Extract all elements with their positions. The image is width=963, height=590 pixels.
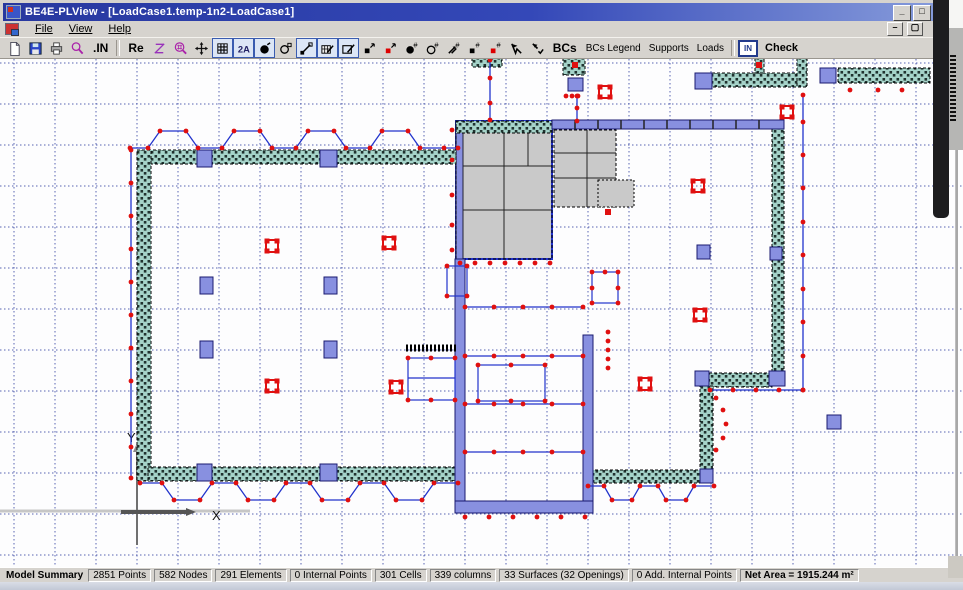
axis-indicator: Y X	[0, 430, 250, 545]
add-node-filled-icon[interactable]: #	[401, 38, 422, 58]
regenerate-button[interactable]: Re	[123, 41, 148, 55]
status-points: 2851 Points	[88, 569, 151, 582]
svg-text:#: #	[496, 41, 501, 50]
canvas-right-border	[956, 150, 958, 567]
window-title: BE4E-PLView - [LoadCase1.temp-1n2-LoadCa…	[25, 6, 294, 18]
menu-bar: File View Help – ▢	[3, 21, 963, 36]
zoom-icon[interactable]	[67, 38, 88, 58]
in-box-icon[interactable]: IN	[738, 40, 758, 57]
toolbar-separator	[116, 40, 120, 56]
svg-text:#: #	[455, 41, 460, 50]
menu-file[interactable]: File	[27, 22, 61, 36]
document-icon[interactable]	[5, 23, 19, 35]
status-columns: 339 columns	[430, 569, 497, 582]
bottom-right-corner-panel	[948, 556, 963, 578]
grid-toggle-button[interactable]	[212, 38, 233, 58]
edit-surface-tool[interactable]	[338, 38, 359, 58]
model-summary-label: Model Summary	[4, 570, 85, 581]
add-node-outline-icon[interactable]: #	[422, 38, 443, 58]
status-internal-points: 0 Internal Points	[290, 569, 372, 582]
svg-text:2A: 2A	[238, 44, 250, 54]
status-cells: 301 Cells	[375, 569, 427, 582]
mdi-restore-button[interactable]: ▢	[907, 22, 923, 36]
status-surfaces: 33 Surfaces (32 Openings)	[499, 569, 629, 582]
svg-text:#: #	[413, 41, 418, 50]
menu-help[interactable]: Help	[100, 22, 139, 36]
new-file-icon[interactable]	[4, 38, 25, 58]
point-number-red-icon[interactable]: #	[485, 38, 506, 58]
minimize-button[interactable]: _	[893, 5, 911, 21]
select-check-icon[interactable]	[527, 38, 548, 58]
menu-view[interactable]: View	[61, 22, 101, 36]
print-icon[interactable]	[46, 38, 67, 58]
status-elements: 291 Elements	[215, 569, 286, 582]
edit-cells-tool[interactable]	[317, 38, 338, 58]
loads-button[interactable]: Loads	[693, 43, 728, 54]
core-slabs	[456, 121, 634, 259]
status-add-internal-points: 0 Add. Internal Points	[632, 569, 737, 582]
application-window: BE4E-PLView - [LoadCase1.temp-1n2-LoadCa…	[0, 0, 963, 590]
add-point-black-icon[interactable]	[359, 38, 380, 58]
mdi-minimize-button[interactable]: –	[887, 22, 903, 36]
status-nodes: 582 Nodes	[154, 569, 212, 582]
floor-plan: Y X	[0, 59, 963, 567]
pan-icon[interactable]	[191, 38, 212, 58]
points-toggle-button[interactable]	[254, 38, 275, 58]
circle-node-tool-icon[interactable]	[275, 38, 296, 58]
app-icon	[6, 5, 21, 19]
save-icon[interactable]	[25, 38, 46, 58]
maximize-button[interactable]: □	[913, 5, 931, 21]
add-point-red-icon[interactable]	[380, 38, 401, 58]
background-window-edge	[949, 0, 963, 28]
status-net-area: Net Area = 1915.244 m²	[740, 569, 859, 582]
desktop-strip	[0, 582, 963, 590]
zoom-window-icon[interactable]	[170, 38, 191, 58]
status-bar: Model Summary 2851 Points 582 Nodes 291 …	[0, 567, 963, 582]
toolbar-separator	[731, 40, 735, 56]
point-number-black-icon[interactable]: #	[464, 38, 485, 58]
x-axis-label: X	[212, 508, 221, 523]
toolbar: .IN Re 2A # # # # # BCs BCs Legend Suppo…	[0, 37, 963, 59]
select-arrow-icon[interactable]	[506, 38, 527, 58]
drawing-canvas[interactable]: Y X	[0, 59, 963, 567]
redraw-icon[interactable]	[149, 38, 170, 58]
move-node-icon[interactable]: #	[443, 38, 464, 58]
background-scrollbar[interactable]	[950, 55, 956, 123]
title-bar[interactable]: BE4E-PLView - [LoadCase1.temp-1n2-LoadCa…	[3, 3, 963, 21]
perimeter-walls	[137, 59, 930, 483]
check-button[interactable]: Check	[760, 42, 803, 54]
draw-line-tool[interactable]	[296, 38, 317, 58]
in-units-button[interactable]: .IN	[88, 41, 113, 55]
svg-text:#: #	[434, 41, 439, 50]
supports-button[interactable]: Supports	[645, 43, 693, 54]
foreground-overlay-bar	[933, 0, 949, 218]
bcs-legend-button[interactable]: BCs Legend	[582, 43, 645, 54]
labels-toggle-button[interactable]: 2A	[233, 38, 254, 58]
bcs-button[interactable]: BCs	[548, 41, 582, 55]
svg-text:#: #	[475, 41, 480, 50]
